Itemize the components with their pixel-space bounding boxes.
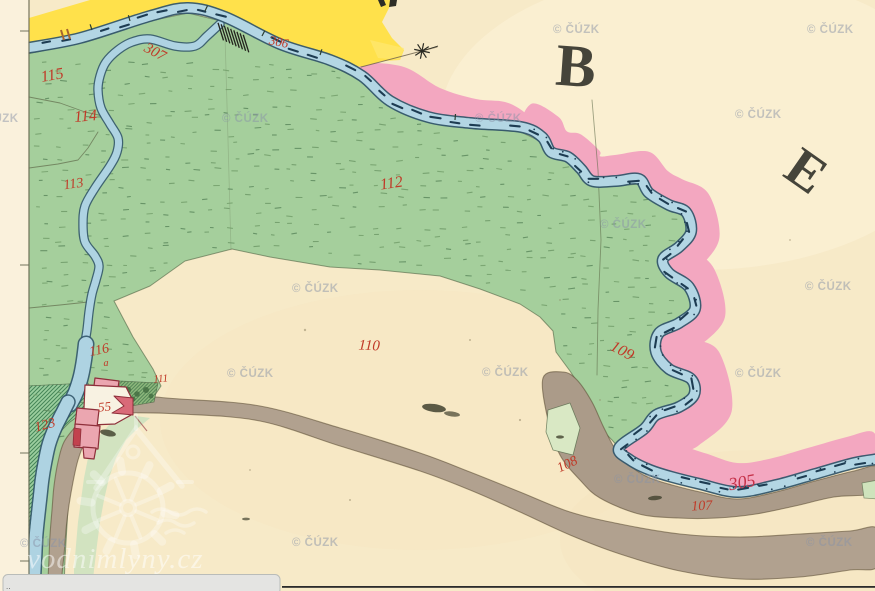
svg-text:© ČÚZK: © ČÚZK xyxy=(0,112,19,125)
svg-text:© ČÚZK: © ČÚZK xyxy=(553,23,600,36)
svg-text:© ČÚZK: © ČÚZK xyxy=(292,282,339,295)
svg-text:© ČÚZK: © ČÚZK xyxy=(292,536,339,549)
svg-text:© ČÚZK: © ČÚZK xyxy=(600,218,647,231)
svg-text:a: a xyxy=(104,358,109,369)
svg-text:© ČÚZK: © ČÚZK xyxy=(482,366,529,379)
svg-text:© ČÚZK: © ČÚZK xyxy=(735,367,782,380)
svg-text:113: 113 xyxy=(63,176,85,194)
svg-text:© ČÚZK: © ČÚZK xyxy=(807,23,854,36)
svg-text:107: 107 xyxy=(691,498,714,514)
svg-text:114: 114 xyxy=(74,107,98,126)
svg-text:© ČÚZK: © ČÚZK xyxy=(805,280,852,293)
svg-text:© ČÚZK: © ČÚZK xyxy=(227,367,274,380)
svg-text:112: 112 xyxy=(379,174,404,194)
svg-text:© ČÚZK: © ČÚZK xyxy=(735,108,782,121)
svg-text:© ČÚZK: © ČÚZK xyxy=(222,112,269,125)
svg-text:© ČÚZK: © ČÚZK xyxy=(475,112,522,125)
svg-text:111: 111 xyxy=(153,372,169,385)
svg-text:© ČÚZK: © ČÚZK xyxy=(614,473,661,486)
svg-text:55: 55 xyxy=(97,398,112,414)
svg-text:..: .. xyxy=(6,582,10,591)
svg-text:B: B xyxy=(554,32,599,101)
svg-text:© ČÚZK: © ČÚZK xyxy=(806,536,853,549)
svg-text:vodnimlyny.cz: vodnimlyny.cz xyxy=(27,543,203,575)
svg-text:110: 110 xyxy=(358,337,381,354)
